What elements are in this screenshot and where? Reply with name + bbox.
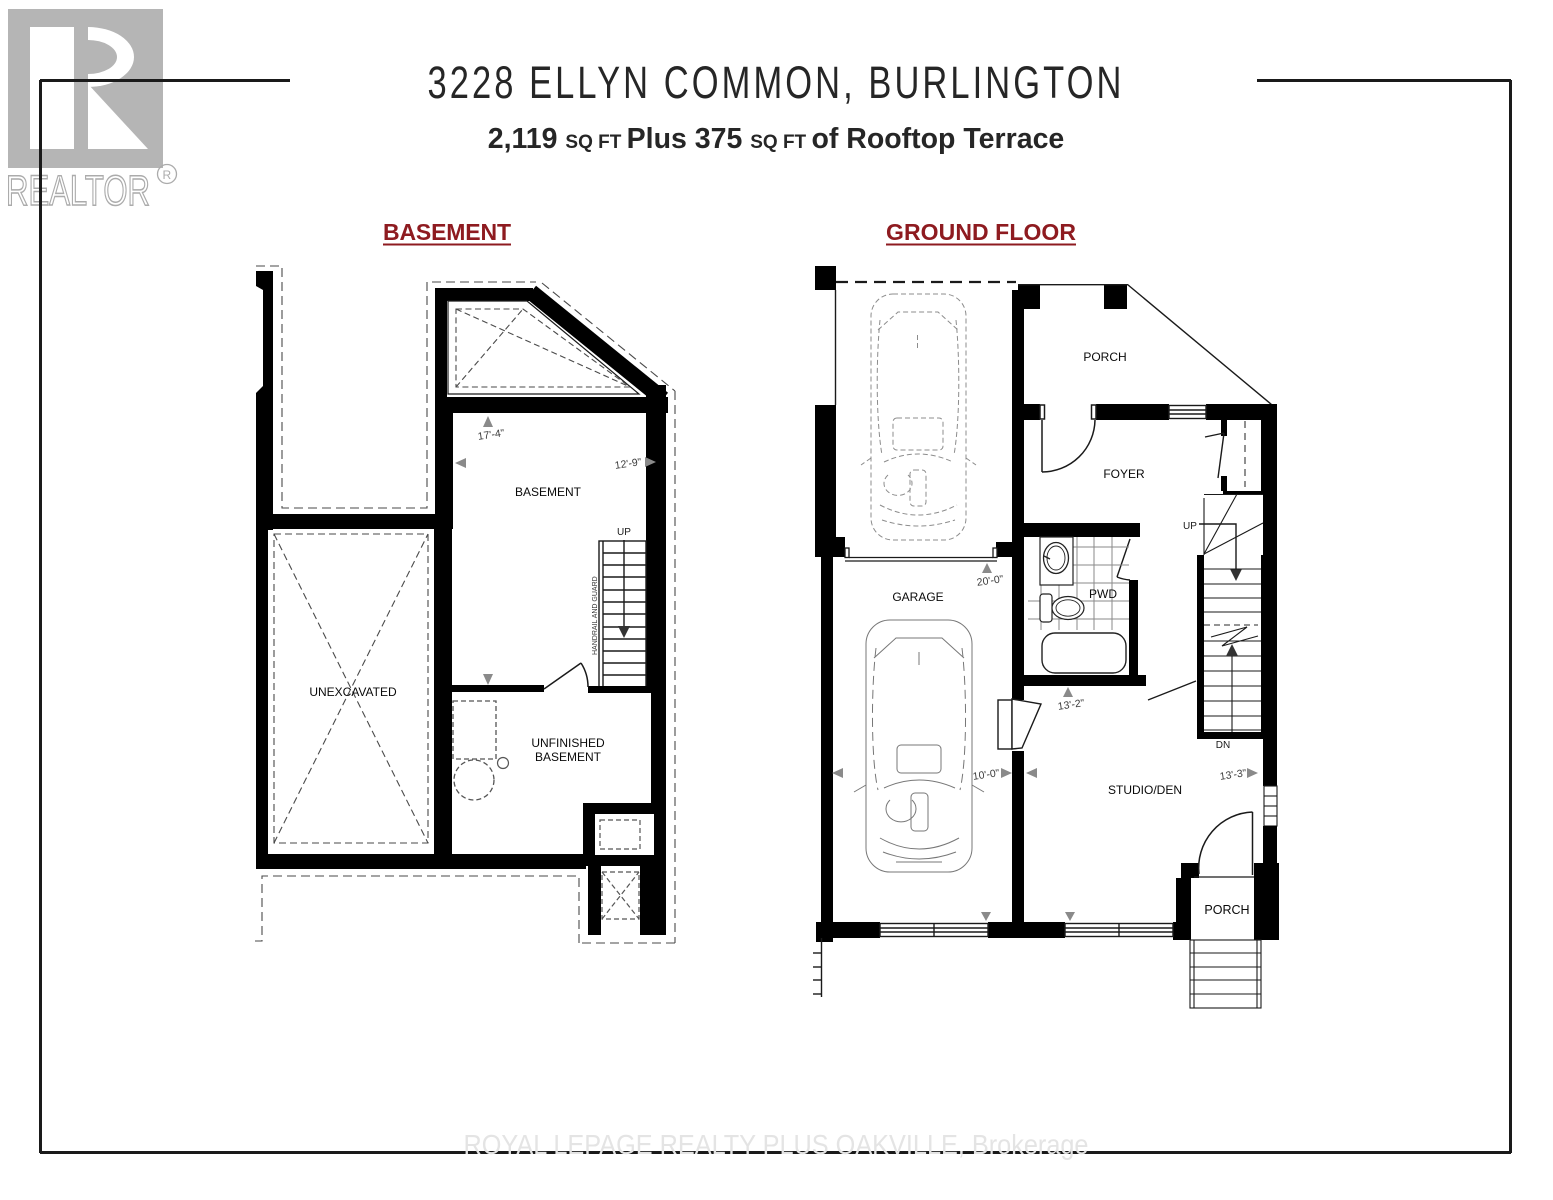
svg-text:UP: UP — [1183, 521, 1197, 532]
svg-text:BASEMENT: BASEMENT — [515, 485, 582, 499]
svg-text:STUDIO/DEN: STUDIO/DEN — [1108, 783, 1182, 797]
svg-text:UNEXCAVATED: UNEXCAVATED — [309, 685, 397, 699]
svg-text:GARAGE: GARAGE — [892, 590, 943, 604]
svg-text:UNFINISHED: UNFINISHED — [531, 736, 605, 750]
svg-text:GROUND FLOOR: GROUND FLOOR — [886, 219, 1076, 245]
svg-text:DN: DN — [1216, 740, 1230, 751]
svg-text:R: R — [163, 168, 172, 182]
svg-text:FOYER: FOYER — [1103, 467, 1145, 481]
svg-text:PWD: PWD — [1089, 587, 1117, 601]
svg-text:PORCH: PORCH — [1083, 350, 1126, 364]
svg-text:UP: UP — [617, 527, 631, 538]
svg-text:HANDRAIL AND GUARD: HANDRAIL AND GUARD — [592, 576, 599, 655]
svg-text:PORCH: PORCH — [1204, 903, 1249, 917]
svg-text:ROYAL LEPAGE REALTY PLUS OAKVI: ROYAL LEPAGE REALTY PLUS OAKVILLE, Broke… — [464, 1129, 1089, 1160]
svg-text:BASEMENT: BASEMENT — [535, 750, 602, 764]
svg-text:BASEMENT: BASEMENT — [383, 219, 511, 245]
svg-text:3228 ELLYN COMMON, BURLINGTON: 3228 ELLYN COMMON, BURLINGTON — [428, 57, 1125, 108]
svg-text:REALTOR: REALTOR — [6, 167, 150, 215]
